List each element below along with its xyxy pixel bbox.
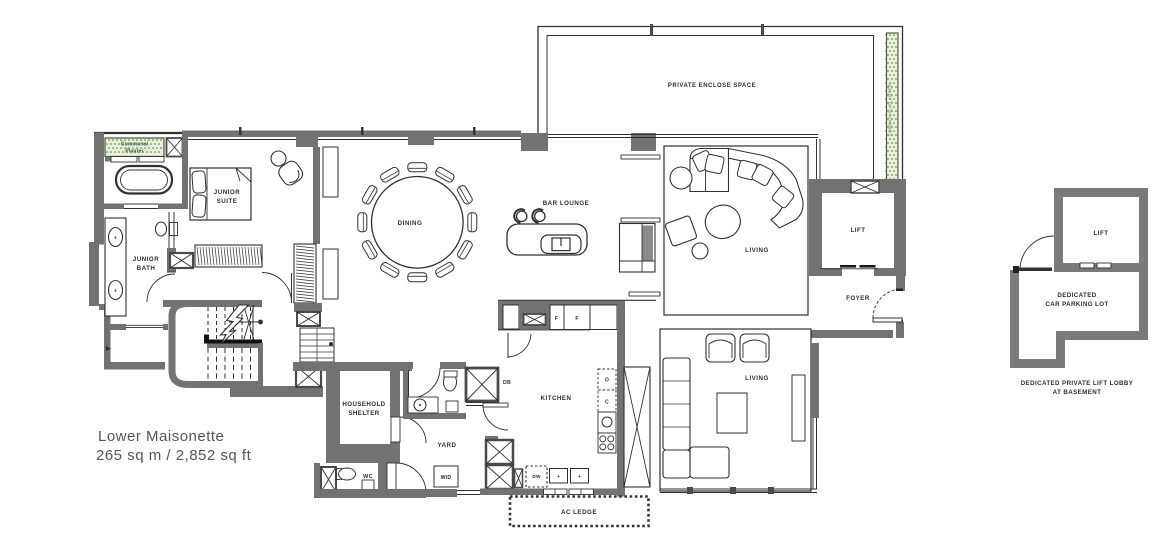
svg-text:LIVING: LIVING xyxy=(745,247,769,254)
svg-text:F: F xyxy=(575,316,578,322)
svg-text:AT BASEMENT: AT BASEMENT xyxy=(1053,389,1102,396)
svg-text:PRIVATE ENCLOSE SPACE: PRIVATE ENCLOSE SPACE xyxy=(668,83,756,89)
svg-text:+: + xyxy=(114,236,117,242)
svg-text:C: C xyxy=(605,400,609,406)
svg-text:F: F xyxy=(555,316,558,322)
svg-text:JUNIOR: JUNIOR xyxy=(133,256,159,263)
svg-text:DW: DW xyxy=(532,474,541,480)
svg-text:Communal: Communal xyxy=(121,142,149,148)
svg-text:LIVING: LIVING xyxy=(745,375,769,382)
svg-text:265 sq m / 2,852 sq ft: 265 sq m / 2,852 sq ft xyxy=(96,447,252,464)
svg-text:YARD: YARD xyxy=(438,442,457,449)
svg-text:HOUSEHOLD: HOUSEHOLD xyxy=(342,401,385,408)
svg-text:DINING: DINING xyxy=(398,220,423,227)
svg-text:LIFT: LIFT xyxy=(1093,230,1108,237)
svg-text:WC: WC xyxy=(363,474,373,480)
svg-text:SUITE: SUITE xyxy=(217,198,238,205)
svg-text:+: + xyxy=(557,474,560,480)
svg-text:O: O xyxy=(605,378,609,384)
svg-text:DEDICATED PRIVATE LIFT LOBBY: DEDICATED PRIVATE LIFT LOBBY xyxy=(1021,380,1134,387)
svg-text:AC LEDGE: AC LEDGE xyxy=(561,509,597,516)
svg-text:W/D: W/D xyxy=(441,475,452,481)
svg-text:+: + xyxy=(114,289,117,295)
svg-text:CAR PARKING LOT: CAR PARKING LOT xyxy=(1045,301,1108,308)
svg-text:KITCHEN: KITCHEN xyxy=(541,395,572,402)
svg-text:COMMUNAL PLANTER: COMMUNAL PLANTER xyxy=(888,83,893,136)
svg-text:SHELTER: SHELTER xyxy=(348,410,379,417)
svg-text:DB: DB xyxy=(503,380,511,386)
svg-text:+: + xyxy=(578,474,581,480)
svg-text:Lower Maisonette: Lower Maisonette xyxy=(98,428,224,445)
svg-text:BAR LOUNGE: BAR LOUNGE xyxy=(543,200,590,207)
svg-text:Planter: Planter xyxy=(125,149,143,155)
svg-text:JUNIOR: JUNIOR xyxy=(214,189,240,196)
svg-text:FOYER: FOYER xyxy=(846,295,870,302)
svg-text:DEDICATED: DEDICATED xyxy=(1057,292,1096,299)
svg-text:BATH: BATH xyxy=(137,265,156,272)
svg-text:LIFT: LIFT xyxy=(850,227,865,234)
